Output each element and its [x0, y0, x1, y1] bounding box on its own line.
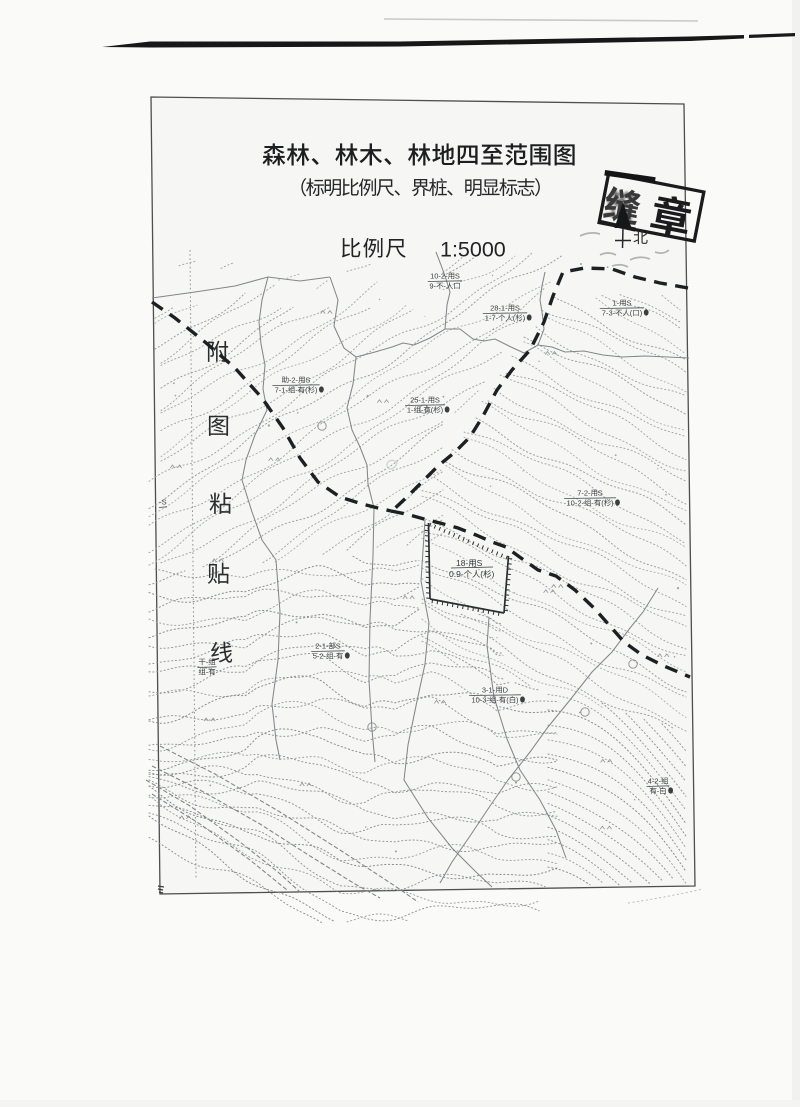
svg-text:S: S — [598, 489, 603, 498]
svg-text:-2-: -2- — [289, 376, 299, 385]
svg-text:7-3-: 7-3- — [602, 309, 616, 318]
svg-text:3-1-: 3-1- — [482, 686, 496, 695]
svg-text:5-2-: 5-2- — [313, 652, 327, 661]
svg-text:9-: 9- — [429, 282, 436, 291]
svg-text:1-7-: 1-7- — [485, 314, 499, 323]
svg-text:18-: 18- — [456, 558, 468, 568]
svg-text:10-2-: 10-2- — [567, 499, 585, 508]
svg-text:S: S — [336, 642, 341, 651]
svg-text:(: ( — [480, 569, 483, 579]
svg-text:-S: -S — [159, 498, 167, 507]
svg-text:D: D — [503, 686, 509, 695]
svg-text:1:5000: 1:5000 — [440, 238, 506, 262]
svg-text:2-1-: 2-1- — [315, 642, 329, 651]
svg-text:S: S — [455, 272, 460, 281]
svg-text:25-1-: 25-1- — [410, 396, 428, 405]
svg-text:S: S — [477, 558, 483, 568]
svg-text:1-: 1- — [407, 406, 414, 415]
svg-text:S: S — [515, 304, 520, 313]
svg-text:): ) — [492, 569, 495, 579]
svg-text:S: S — [627, 299, 632, 308]
svg-text:4-2-: 4-2- — [648, 777, 662, 786]
svg-text:S: S — [305, 376, 310, 385]
svg-text:1-: 1- — [613, 299, 620, 308]
svg-text:7-2-: 7-2- — [577, 489, 591, 498]
svg-text:7-1-: 7-1- — [275, 386, 289, 395]
svg-text:S: S — [435, 396, 440, 405]
svg-text:0.9-: 0.9- — [449, 569, 464, 579]
svg-text:28-1-: 28-1- — [490, 304, 508, 313]
svg-text:10-3-: 10-3- — [472, 696, 490, 705]
svg-text:10-2-: 10-2- — [430, 272, 448, 281]
